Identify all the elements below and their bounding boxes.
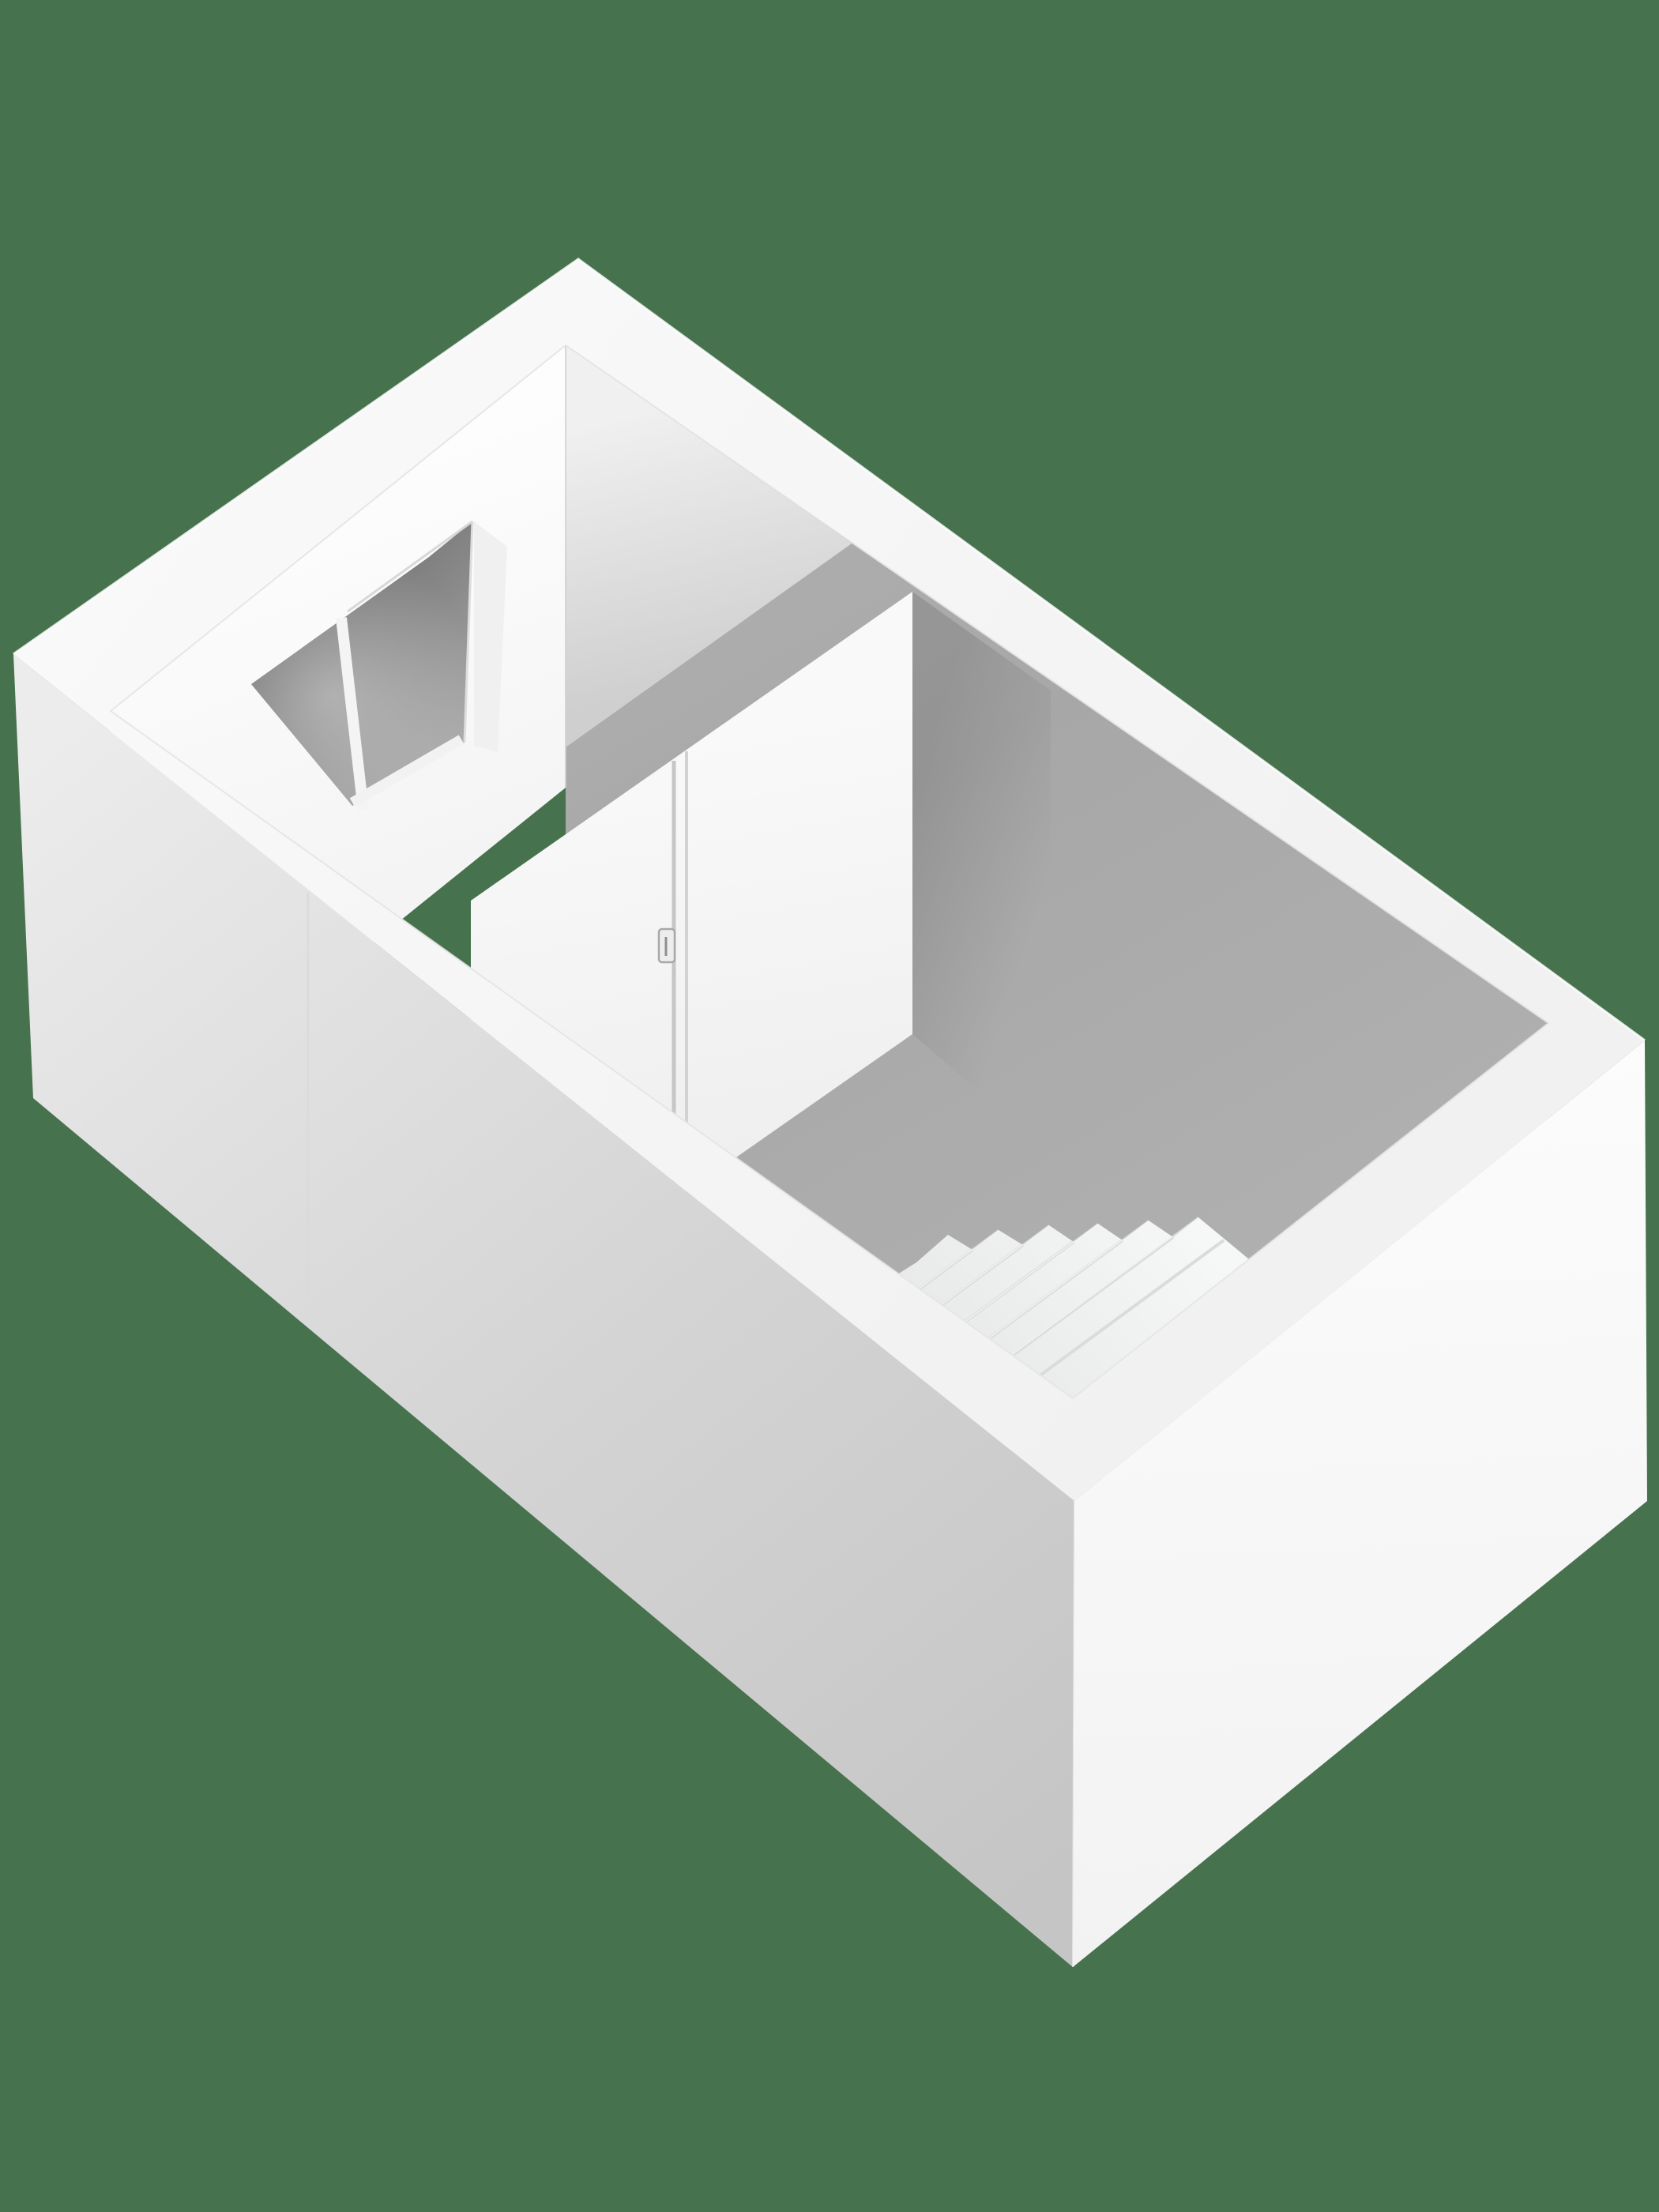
floorplan-3d-render[interactable]	[0, 0, 1659, 2212]
floorplan-3d-canvas[interactable]	[0, 0, 1659, 2212]
